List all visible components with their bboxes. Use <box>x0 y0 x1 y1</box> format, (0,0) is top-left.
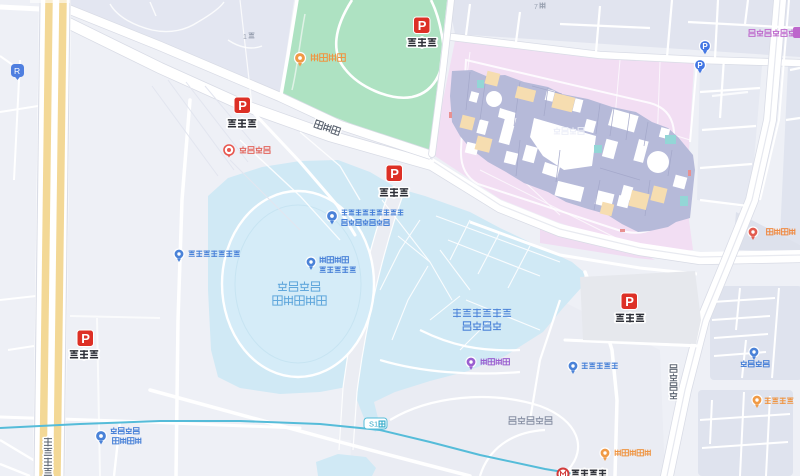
svg-text:P: P <box>702 42 708 51</box>
svg-text:S1: S1 <box>369 420 378 429</box>
svg-text:R: R <box>14 66 20 76</box>
svg-text:P: P <box>418 18 427 33</box>
svg-text:7: 7 <box>534 4 538 11</box>
svg-text:P: P <box>390 166 399 181</box>
svg-text:P: P <box>697 61 703 70</box>
svg-text:1: 1 <box>243 34 247 41</box>
svg-text:P: P <box>625 294 634 309</box>
svg-text:P: P <box>238 98 247 113</box>
svg-text:P: P <box>81 331 90 346</box>
